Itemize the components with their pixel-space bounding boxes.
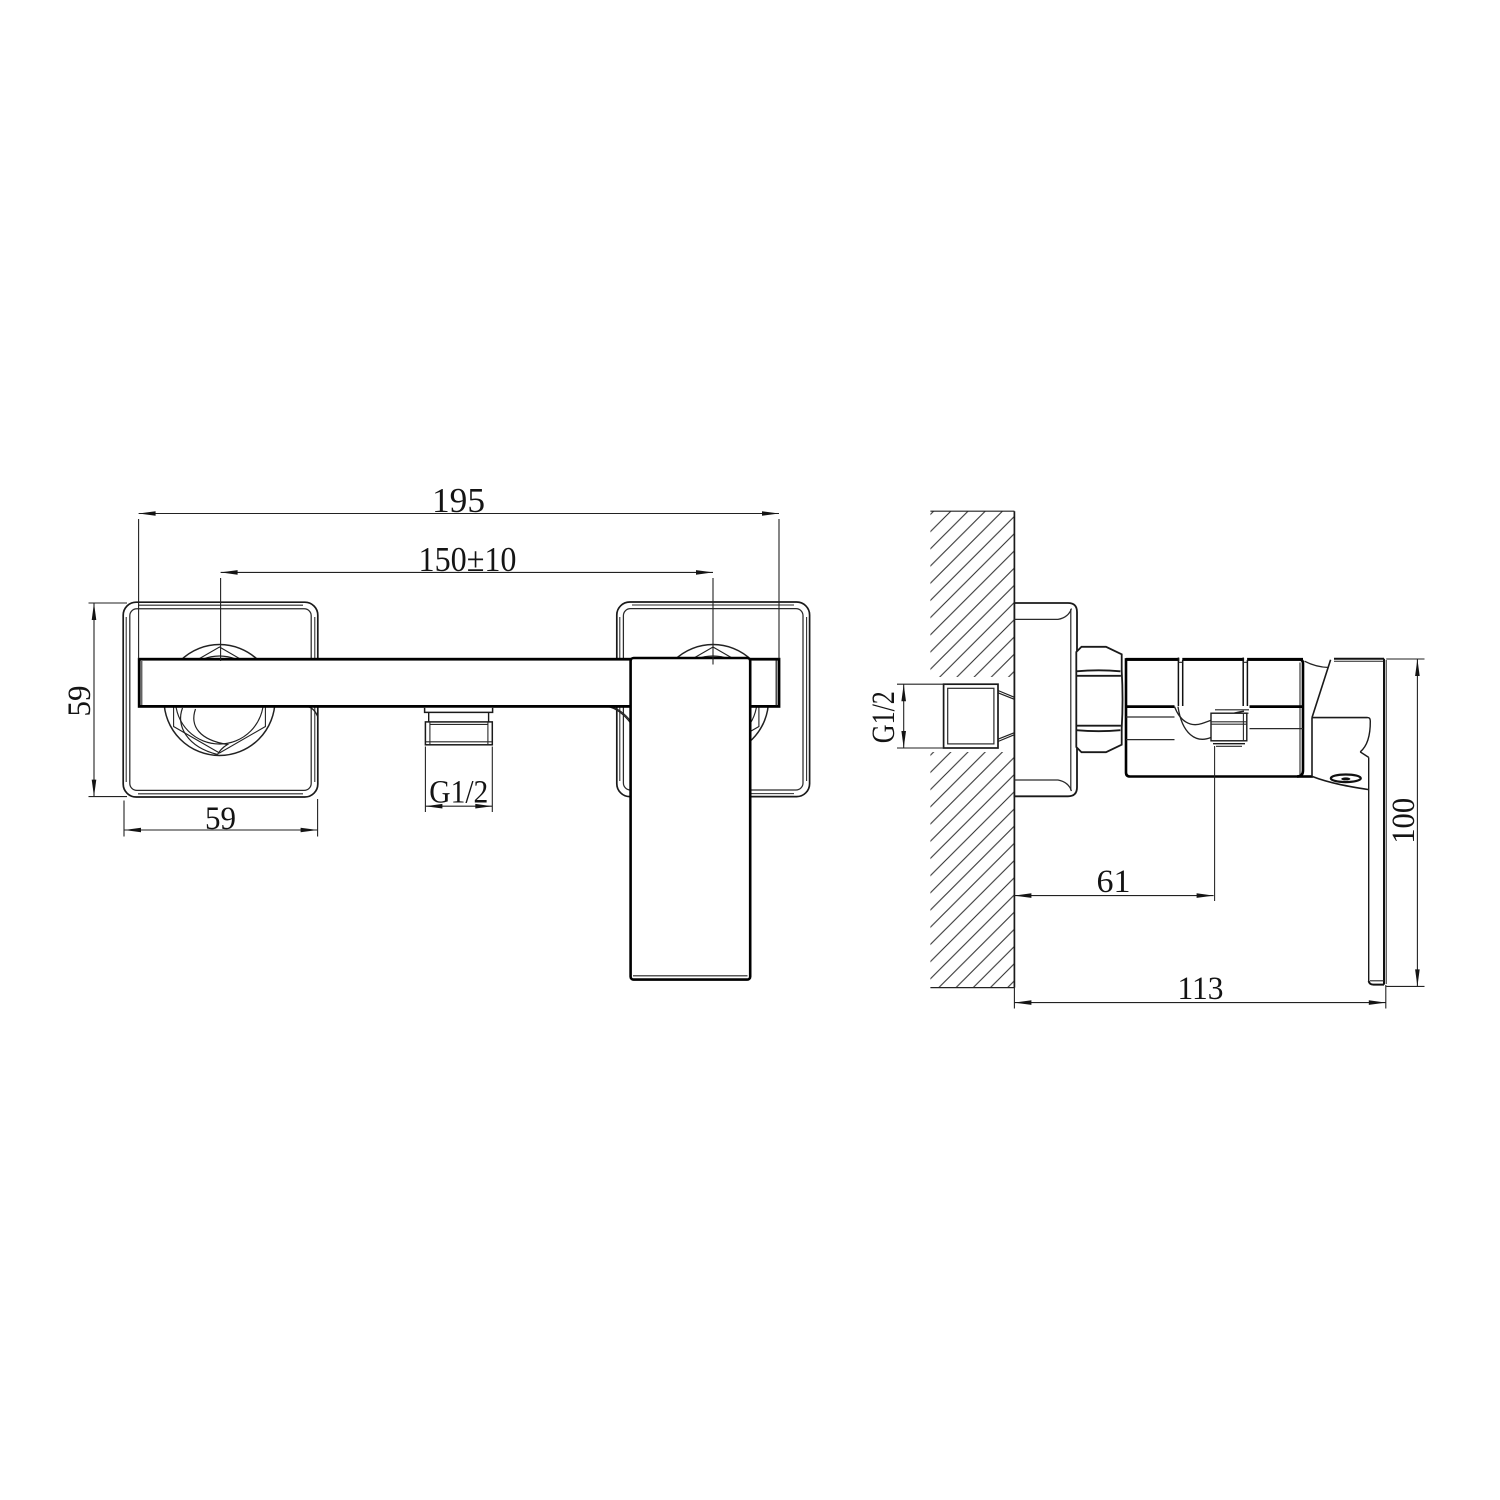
svg-text:G1/2: G1/2 [866, 691, 902, 743]
svg-text:59: 59 [205, 801, 236, 837]
svg-text:59: 59 [62, 686, 98, 717]
svg-text:113: 113 [1178, 971, 1224, 1007]
svg-text:195: 195 [432, 481, 485, 520]
svg-text:100: 100 [1386, 798, 1422, 844]
svg-text:G1/2: G1/2 [429, 775, 488, 811]
svg-text:150±10: 150±10 [419, 540, 517, 579]
svg-text:61: 61 [1097, 864, 1131, 900]
